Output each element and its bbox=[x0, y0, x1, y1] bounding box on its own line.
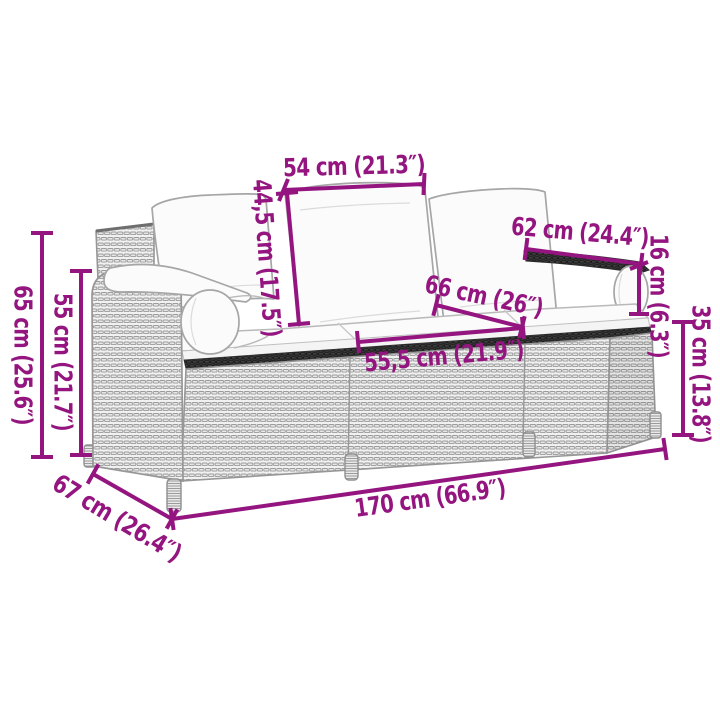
armrest-left bbox=[92, 266, 183, 481]
label-back-cushion-height: 44,5 cm (17.5″) bbox=[247, 178, 287, 338]
sofa-leg-middle-right bbox=[523, 432, 535, 457]
sofa-leg-front-left bbox=[167, 479, 181, 512]
label-back-cushion-width: 54 cm (21.3″) bbox=[283, 150, 426, 183]
label-armrest-drop: 16 cm (6.3″) bbox=[645, 234, 674, 358]
label-total-depth: 67 cm (26.4″) bbox=[47, 468, 186, 568]
dimension-diagram: 54 cm (21.3″) 44,5 cm (17.5″) 62 cm (24.… bbox=[0, 0, 720, 720]
label-armrest-height: 55 cm (21.7″) bbox=[49, 293, 78, 431]
diagram-svg: 54 cm (21.3″) 44,5 cm (17.5″) 62 cm (24.… bbox=[0, 0, 720, 720]
sofa-leg-rear-right bbox=[650, 412, 661, 438]
sofa-leg-middle bbox=[345, 454, 358, 480]
label-seat-height: 35 cm (13.8″) bbox=[687, 305, 716, 443]
label-total-height: 65 cm (25.6″) bbox=[9, 285, 38, 425]
